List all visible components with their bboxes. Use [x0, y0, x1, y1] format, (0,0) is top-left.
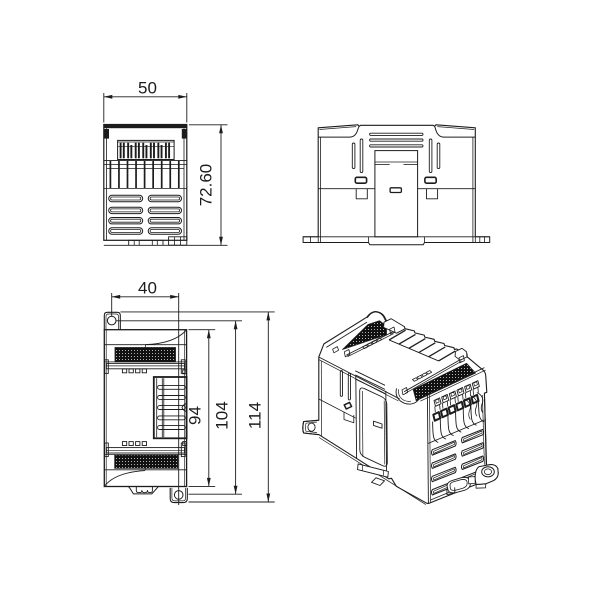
svg-text:72.60: 72.60	[197, 164, 216, 207]
svg-text:50: 50	[138, 79, 157, 98]
svg-text:114: 114	[246, 402, 265, 429]
svg-text:40: 40	[138, 279, 157, 298]
svg-text:104: 104	[213, 401, 232, 429]
svg-text:94: 94	[186, 406, 205, 425]
